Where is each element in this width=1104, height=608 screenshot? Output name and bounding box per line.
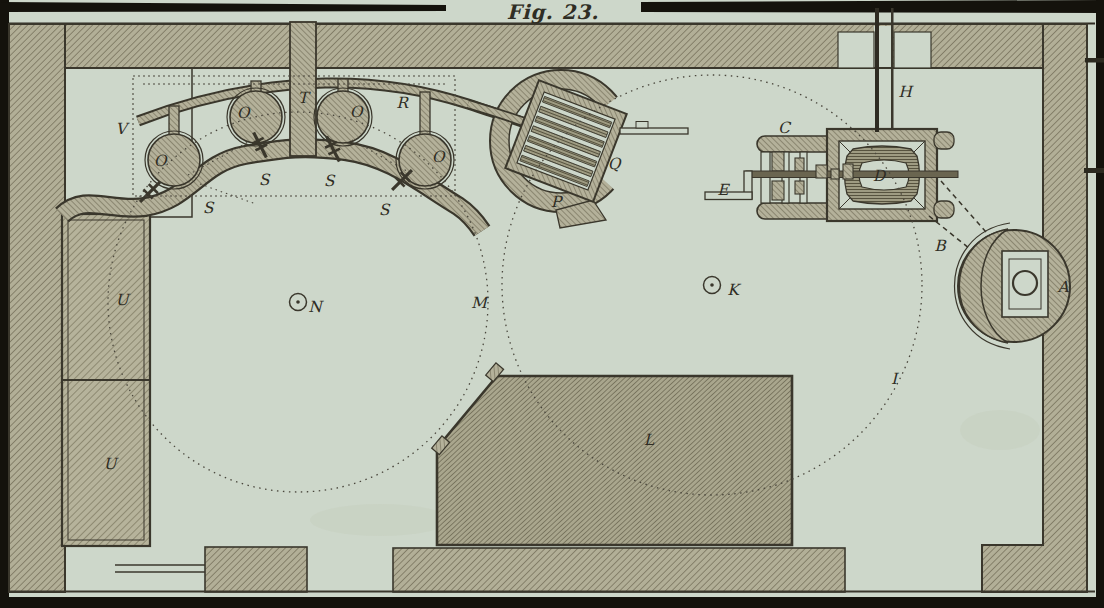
label-S-4: S bbox=[379, 201, 391, 219]
base-platform bbox=[393, 548, 845, 592]
left-wall bbox=[9, 24, 65, 592]
label-O-1: O bbox=[154, 152, 168, 170]
engraving-plate: Fig. 23. V T O O O O R S S S S Q P N M K… bbox=[0, 0, 1104, 608]
wall-notch-left bbox=[838, 32, 874, 68]
float-O-3 bbox=[314, 88, 372, 146]
label-S-1: S bbox=[203, 199, 215, 217]
figure-23-drawing: Fig. 23. V T O O O O R S S S S Q P N M K… bbox=[0, 0, 1104, 608]
reservoir-U bbox=[62, 214, 150, 546]
label-E: E bbox=[717, 181, 730, 199]
label-Q: Q bbox=[608, 155, 622, 173]
box-lug-top bbox=[934, 132, 954, 149]
label-M: M bbox=[471, 294, 489, 312]
foundation-block bbox=[205, 547, 307, 592]
plate-border-left bbox=[0, 0, 9, 608]
border-tick-upper bbox=[1085, 58, 1104, 63]
border-tick-lower bbox=[1084, 168, 1104, 173]
plate-border-right bbox=[1096, 0, 1104, 608]
label-O-2: O bbox=[237, 104, 251, 122]
label-S-3: S bbox=[324, 172, 336, 190]
plate-border-bottom bbox=[0, 597, 1104, 608]
label-A: A bbox=[1056, 278, 1069, 296]
label-B: B bbox=[934, 237, 947, 255]
label-O-4: O bbox=[432, 148, 446, 166]
label-S-2: S bbox=[259, 171, 271, 189]
box-lug-bottom bbox=[934, 201, 954, 218]
label-D: D bbox=[873, 167, 887, 185]
label-O-3: O bbox=[350, 103, 364, 121]
label-L: L bbox=[644, 431, 655, 449]
hub-eye bbox=[1013, 271, 1037, 295]
label-R: R bbox=[396, 94, 409, 112]
figure-title: Fig. 23. bbox=[507, 0, 600, 24]
plate-border-top-right bbox=[641, 0, 1104, 13]
block-L bbox=[432, 363, 792, 545]
wall-notch-right bbox=[894, 32, 931, 68]
float-O-4 bbox=[396, 131, 454, 189]
